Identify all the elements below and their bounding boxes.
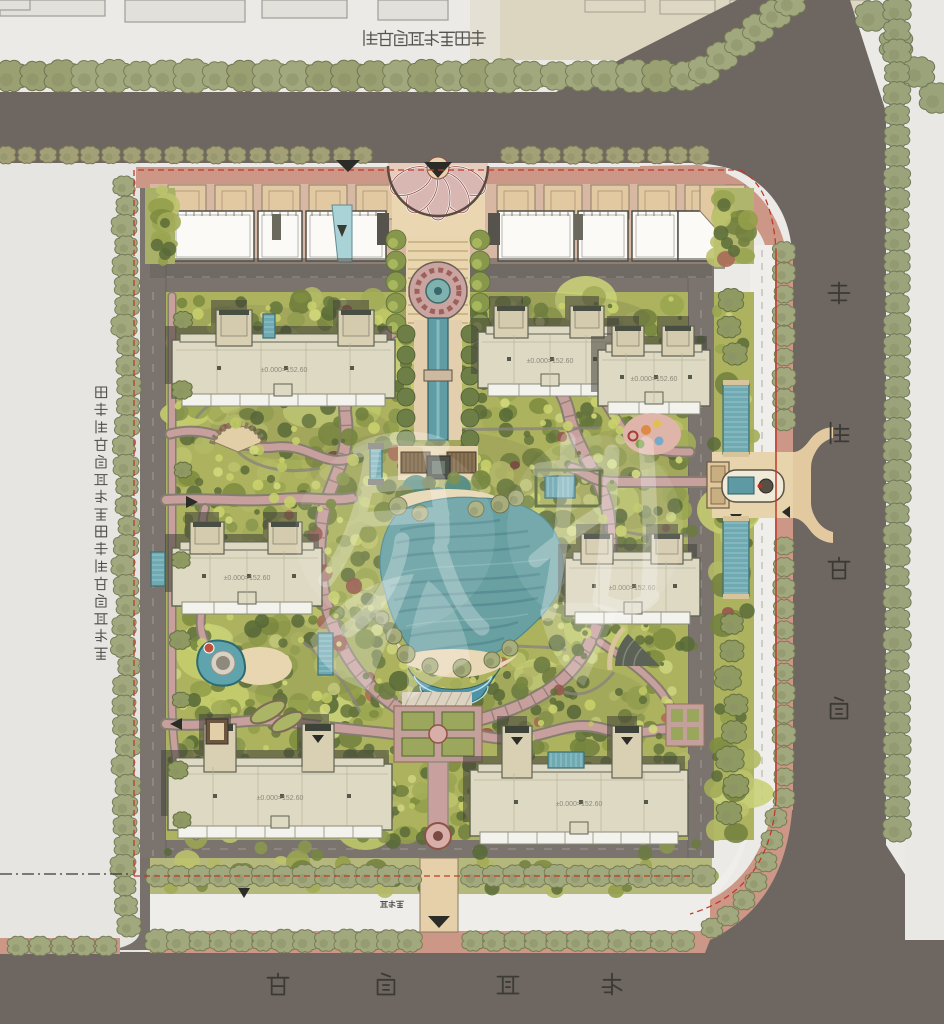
svg-text:±0.000=152.60: ±0.000=152.60	[261, 367, 308, 374]
svg-text:±0.000=152.60: ±0.000=152.60	[257, 795, 304, 802]
svg-text:±0.000=152.60: ±0.000=152.60	[631, 376, 678, 383]
svg-text:±0.000=152.60: ±0.000=152.60	[556, 801, 603, 808]
svg-text:±0.000=152.60: ±0.000=152.60	[224, 575, 271, 582]
svg-text:±0.000=152.60: ±0.000=152.60	[527, 358, 574, 365]
